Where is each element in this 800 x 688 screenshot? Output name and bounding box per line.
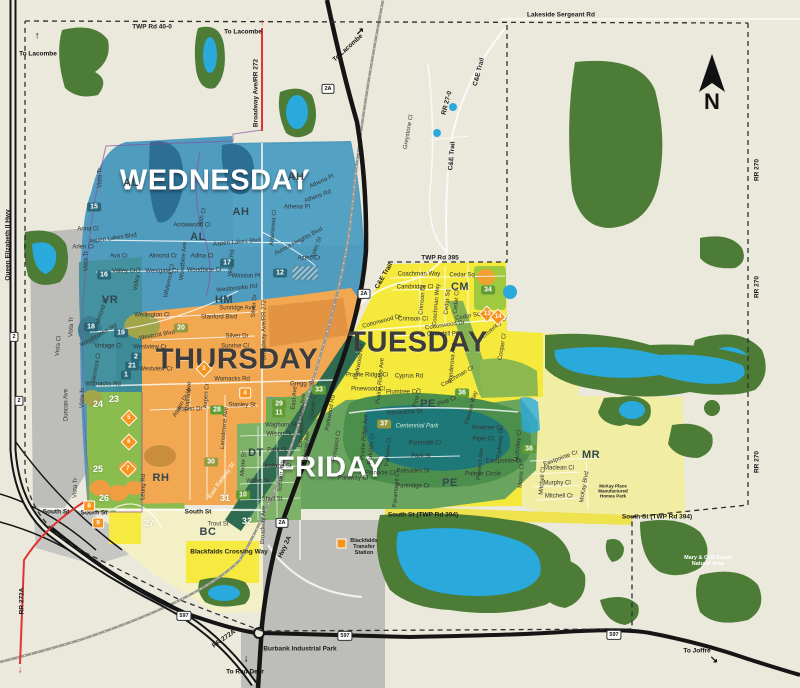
badge-4: 4 bbox=[239, 388, 251, 399]
badge-25: 25 bbox=[93, 464, 103, 474]
map-label: ↑ bbox=[35, 31, 40, 42]
map-label: Athena Pl bbox=[309, 174, 335, 191]
map-label: South St (TWP Rd 394) bbox=[622, 513, 692, 520]
map-label: Parkwood Rd bbox=[325, 395, 338, 432]
map-label: Parkway Cl bbox=[338, 476, 368, 483]
map-label: Crimson Cl bbox=[398, 317, 428, 324]
map-label: Ava Cr bbox=[110, 254, 128, 261]
zone-letter-vr: VR bbox=[102, 294, 118, 306]
map-label: Maclean Cl bbox=[544, 466, 574, 473]
zone-label-tuesday: TUESDAY bbox=[348, 327, 487, 360]
map-label: Burbank Industrial Park bbox=[263, 645, 336, 652]
map-label: Park St bbox=[267, 448, 287, 455]
map-label: Adina Cl bbox=[191, 254, 214, 261]
map-label: Vista Tr bbox=[98, 168, 105, 188]
map-label: Greystone Cl bbox=[403, 114, 416, 150]
map-label: Prairie Ridge Ave bbox=[376, 358, 387, 405]
map-label: Pine Cl bbox=[437, 396, 457, 409]
map-label: RR 272A bbox=[18, 588, 25, 615]
map-label: East Ave bbox=[291, 386, 300, 410]
badge-6: 6 bbox=[121, 434, 138, 451]
badge-38: 38 bbox=[522, 445, 536, 454]
map-label: Wilson St bbox=[266, 432, 291, 439]
map-label: Broadway Ave/RR 272 bbox=[252, 59, 259, 127]
map-label: Coachman Way bbox=[398, 272, 440, 279]
map-label: Piper Cl bbox=[472, 437, 493, 444]
zone-letter-ah: AH bbox=[233, 206, 250, 218]
map-label: Stanford Blvd bbox=[201, 315, 237, 322]
badge-9: 9 bbox=[92, 518, 104, 529]
map-label: Woodbine Cl bbox=[187, 268, 221, 275]
map-label: RR 270 bbox=[753, 451, 760, 473]
map-label: Vista Tr bbox=[72, 478, 79, 498]
map-label: Murphy Cl bbox=[543, 481, 570, 488]
map-label: C&E Trail bbox=[472, 57, 486, 87]
badge-1: 1 bbox=[121, 371, 131, 380]
highway-shield-2a: 2A bbox=[357, 289, 370, 299]
zone-letter-rh: RH bbox=[153, 472, 170, 484]
map-label: ↘ bbox=[710, 655, 718, 666]
map-label: To Joffre bbox=[683, 647, 710, 654]
map-label: Vista Cl bbox=[55, 335, 63, 356]
badge-18: 18 bbox=[84, 323, 98, 332]
zone-letter-dt: DT bbox=[248, 447, 264, 459]
map-label: Hwy 2A bbox=[277, 535, 293, 559]
map-label: Vermont Cl bbox=[91, 353, 103, 383]
map-label: Mitchell Cr bbox=[545, 494, 573, 501]
highway-shield-2: 2 bbox=[14, 396, 23, 406]
map-label: Westbrooke Rd bbox=[216, 284, 258, 295]
map-label: Mitchell Cl bbox=[539, 467, 548, 495]
badge-20: 20 bbox=[174, 324, 188, 333]
north-arrow-icon: N bbox=[694, 54, 730, 113]
map-label: Cooper Cl bbox=[497, 333, 508, 361]
map-label: Moore St bbox=[240, 452, 249, 477]
badge-16: 16 bbox=[97, 271, 111, 280]
badge-19: 19 bbox=[114, 329, 128, 338]
map-label: Cedar Sq bbox=[449, 273, 474, 280]
map-label: Almond Cr bbox=[149, 254, 177, 261]
map-label: RR 270 bbox=[753, 159, 760, 181]
map-label: Leung Rd bbox=[140, 474, 147, 500]
map-label: South St bbox=[43, 508, 70, 515]
map-label: Coachman Way bbox=[432, 284, 442, 327]
badge-28: 28 bbox=[210, 406, 224, 415]
map-label: Churchill Pl bbox=[427, 332, 457, 339]
map-label: Queen Elizabeth II Hwy bbox=[4, 209, 11, 280]
map-label: Coachman Cr bbox=[440, 365, 475, 389]
badge-5: 5 bbox=[121, 410, 138, 427]
badge-37: 37 bbox=[377, 420, 391, 429]
badge-32: 32 bbox=[242, 516, 252, 526]
badge-34: 34 bbox=[481, 286, 495, 295]
map-label: Winston Pl bbox=[232, 274, 261, 281]
highway-shield-2: 2 bbox=[9, 332, 18, 342]
highway-shield-597: 597 bbox=[606, 630, 621, 640]
map-label: Duncan Ave bbox=[64, 389, 71, 421]
map-label: Broadway Ave/RR 272 bbox=[262, 300, 269, 360]
badge-31: 31 bbox=[220, 493, 230, 503]
map-label: RR 270 bbox=[753, 276, 760, 298]
map-label: Broadway Ave bbox=[260, 506, 268, 544]
zone-letter-pe: PE bbox=[420, 398, 436, 410]
badge-2: 2 bbox=[131, 353, 141, 362]
highway-shield-2a: 2A bbox=[275, 518, 288, 528]
highway-shield-2a: 2A bbox=[321, 84, 334, 94]
zone-letter-cm: CM bbox=[451, 281, 469, 293]
label-layer: WEDNESDAY THURSDAY TUESDAY FRIDAY N TWP … bbox=[0, 0, 800, 688]
map-label: Woodbine Ave bbox=[179, 242, 189, 281]
zone-letter-ah: AH bbox=[288, 171, 305, 183]
map-label: To Red Deer bbox=[226, 668, 264, 675]
zone-letter-hm: HM bbox=[215, 294, 233, 306]
map-label: Aspen Lakes Blvd bbox=[213, 238, 261, 249]
map-label: C&E Trail bbox=[374, 262, 395, 291]
map-label: To Lacombe bbox=[224, 28, 262, 35]
map-label: Anna Cl bbox=[77, 227, 98, 234]
badge-29: 29 bbox=[272, 400, 286, 409]
map-label: Queen Cl bbox=[310, 393, 319, 419]
zone-letter-pe: PE bbox=[442, 477, 458, 489]
badge-23: 23 bbox=[109, 394, 119, 404]
badge-7: 7 bbox=[120, 461, 137, 478]
map-label: Winks St bbox=[246, 479, 270, 486]
map-label: Morris Cl bbox=[518, 464, 527, 488]
map-label: Arrowwood Cl bbox=[173, 223, 210, 230]
map-label: Parkridge Cr bbox=[396, 484, 430, 491]
map-label: Athena Pl bbox=[284, 205, 310, 212]
zone-letter-al: AL bbox=[190, 231, 206, 243]
north-label: N bbox=[694, 91, 730, 113]
map-label: Westcott Blvd bbox=[138, 330, 175, 343]
map-label: Crimson Cl bbox=[418, 285, 427, 315]
badge-27: 27 bbox=[144, 518, 154, 528]
map-label: Park St bbox=[411, 454, 431, 461]
map-label: ↓ bbox=[244, 654, 249, 665]
highway-shield-597: 597 bbox=[176, 611, 191, 621]
map-label: Parkway Dr bbox=[496, 427, 505, 458]
map-label: Silver Dr bbox=[251, 294, 260, 318]
map-label: Vintage Cl bbox=[94, 344, 122, 351]
map-label: Womacks Rd bbox=[214, 377, 250, 384]
zone-letter-mr: MR bbox=[582, 449, 600, 461]
map-label: Shull St bbox=[262, 497, 283, 504]
badge-10: 10 bbox=[236, 491, 250, 500]
map-label: Silver Dr bbox=[225, 334, 248, 341]
badge-17: 17 bbox=[220, 259, 234, 268]
map-label: RR 27-0 bbox=[440, 90, 453, 115]
map-label: Pinnacle Cl bbox=[365, 471, 395, 478]
badge-11: 11 bbox=[272, 409, 285, 418]
map-label: To Lacombe bbox=[19, 50, 57, 57]
map-label: Aztec Cr bbox=[297, 256, 320, 263]
map-label: South St bbox=[185, 508, 212, 515]
badge-30: 30 bbox=[204, 458, 218, 467]
map-label: Cyprus Rd bbox=[395, 374, 423, 381]
map-label: Valley Cr bbox=[112, 269, 136, 276]
badge-15: 15 bbox=[87, 203, 101, 212]
map-label: Cedar Cl bbox=[453, 290, 462, 314]
map-label: Pondside Cr bbox=[408, 441, 441, 448]
map-label: Sunridge Ave bbox=[219, 306, 255, 313]
map-label: Waghorn St bbox=[265, 423, 296, 430]
badge-24: 24 bbox=[93, 399, 103, 409]
map-label: Eastpointe Dr bbox=[486, 459, 522, 466]
badge-8: 8 bbox=[83, 501, 95, 512]
map-label: Parview Cl bbox=[384, 437, 393, 466]
map-label: ↗ bbox=[356, 27, 364, 38]
map-label: Womacks Rd bbox=[85, 382, 121, 389]
map-label: Vista Tr bbox=[84, 251, 91, 271]
map-label: ↓ bbox=[18, 665, 23, 676]
map-label: Vista Tr bbox=[79, 388, 86, 408]
zone-letter-bc: BC bbox=[200, 526, 217, 538]
map-label: South St (TWP Rd 394) bbox=[388, 511, 458, 518]
badge-33: 33 bbox=[312, 386, 326, 395]
map-label: Westview Cr bbox=[139, 367, 173, 374]
zone-letter-al: AL bbox=[123, 177, 139, 189]
badge-26: 26 bbox=[99, 493, 109, 503]
map-label: Stanley St bbox=[228, 403, 255, 410]
map-label: Westview Cr bbox=[133, 345, 167, 352]
map-label: Alderwood Cl bbox=[269, 210, 279, 246]
badge-21: 21 bbox=[125, 362, 139, 371]
collection-zone-map: WEDNESDAY THURSDAY TUESDAY FRIDAY N TWP … bbox=[0, 0, 800, 688]
badge-12: 12 bbox=[273, 269, 287, 278]
map-label: Panorama Dr bbox=[387, 408, 423, 417]
map-label: McKay Place Manufactured Homes Park bbox=[592, 485, 634, 500]
map-label: Pinetree Cl bbox=[472, 426, 502, 433]
map-label: Cambridge Cl bbox=[397, 285, 434, 292]
badge-36: 36 bbox=[455, 389, 469, 398]
map-label: Mary & Cliff Soper Natural Area bbox=[678, 555, 738, 567]
map-label: Lawton Ave bbox=[298, 393, 307, 424]
map-label: McKay Blvd bbox=[579, 471, 591, 503]
map-label: RR 272A bbox=[211, 628, 237, 649]
map-label: TWP Rd 40-0 bbox=[132, 23, 172, 30]
zone-label-wednesday: WEDNESDAY bbox=[120, 165, 310, 198]
map-label: Wellington Cl bbox=[134, 313, 169, 320]
map-label: Indiana St bbox=[264, 464, 291, 471]
map-label: Schuler Ave bbox=[277, 460, 286, 492]
map-label: C&E Trail bbox=[447, 141, 457, 170]
map-label: TWP Rd 395 bbox=[421, 254, 458, 261]
highway-shield-597: 597 bbox=[337, 631, 352, 641]
map-label: Centennial Park bbox=[394, 424, 440, 431]
map-label: Plumtree Cr bbox=[386, 390, 418, 397]
map-label: Vista Tr bbox=[68, 317, 75, 337]
map-label: ↑ bbox=[260, 18, 265, 29]
map-label: Blackfalds Transfer Station bbox=[346, 538, 382, 556]
map-label: Lakeside Sergeant Rd bbox=[527, 11, 595, 18]
map-label: Blackfalds Crossing Way bbox=[190, 548, 267, 555]
map-label: Aspen Lakes Blvd bbox=[89, 232, 137, 245]
map-label: Sunrise Cl bbox=[221, 344, 249, 351]
